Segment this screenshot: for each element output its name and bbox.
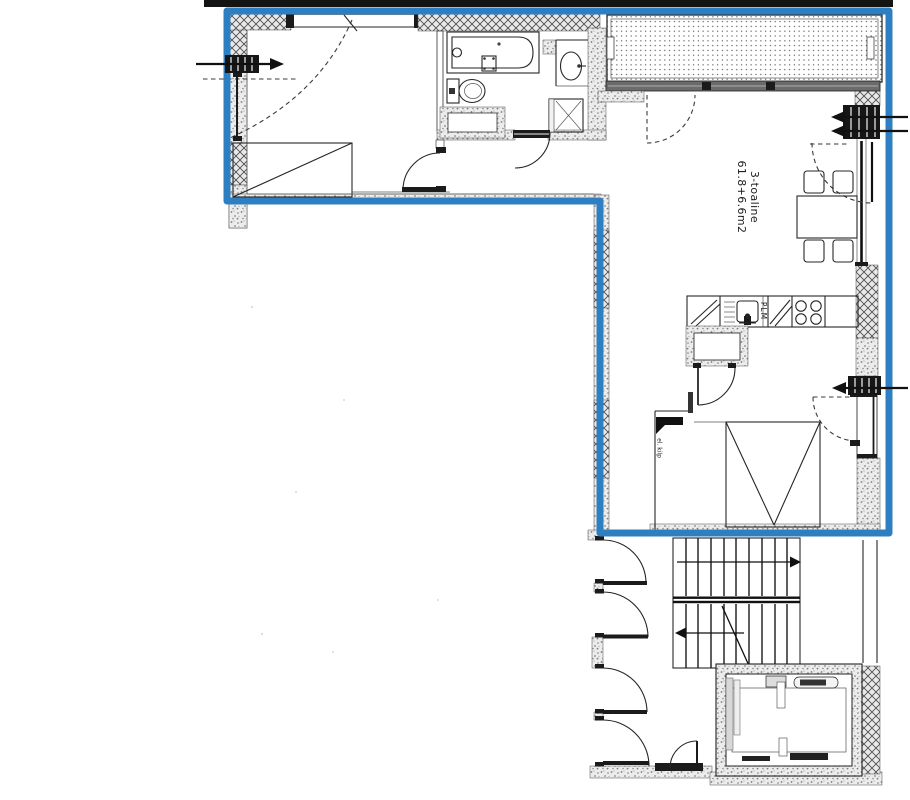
- kitchen-closet: [686, 326, 748, 368]
- vanity-cabinet: [440, 107, 505, 138]
- door-leaf: [603, 761, 649, 765]
- stair-landing-rail: [673, 597, 800, 599]
- dishwasher-label: PLM: [759, 302, 768, 320]
- door-leaf: [603, 710, 647, 714]
- top-border-bar: [204, 0, 893, 7]
- door-leaf: [603, 581, 647, 585]
- room-label: 3-toaline 61.8+6.6m2: [735, 161, 761, 234]
- floor-plan-page: 3-toaline 61.8+6.6m2: [0, 0, 910, 800]
- elevator: [716, 664, 862, 776]
- apartment-type-label: 3-toaline: [748, 171, 761, 223]
- door-leaf: [402, 187, 440, 192]
- door-leaf: [603, 635, 648, 639]
- floor-plan-drawing: 3-toaline 61.8+6.6m2: [0, 0, 910, 800]
- area-label: 61.8+6.6m2: [735, 161, 748, 234]
- balcony-slab: [607, 15, 882, 82]
- electrical-panel-label: el. kilp: [656, 438, 663, 458]
